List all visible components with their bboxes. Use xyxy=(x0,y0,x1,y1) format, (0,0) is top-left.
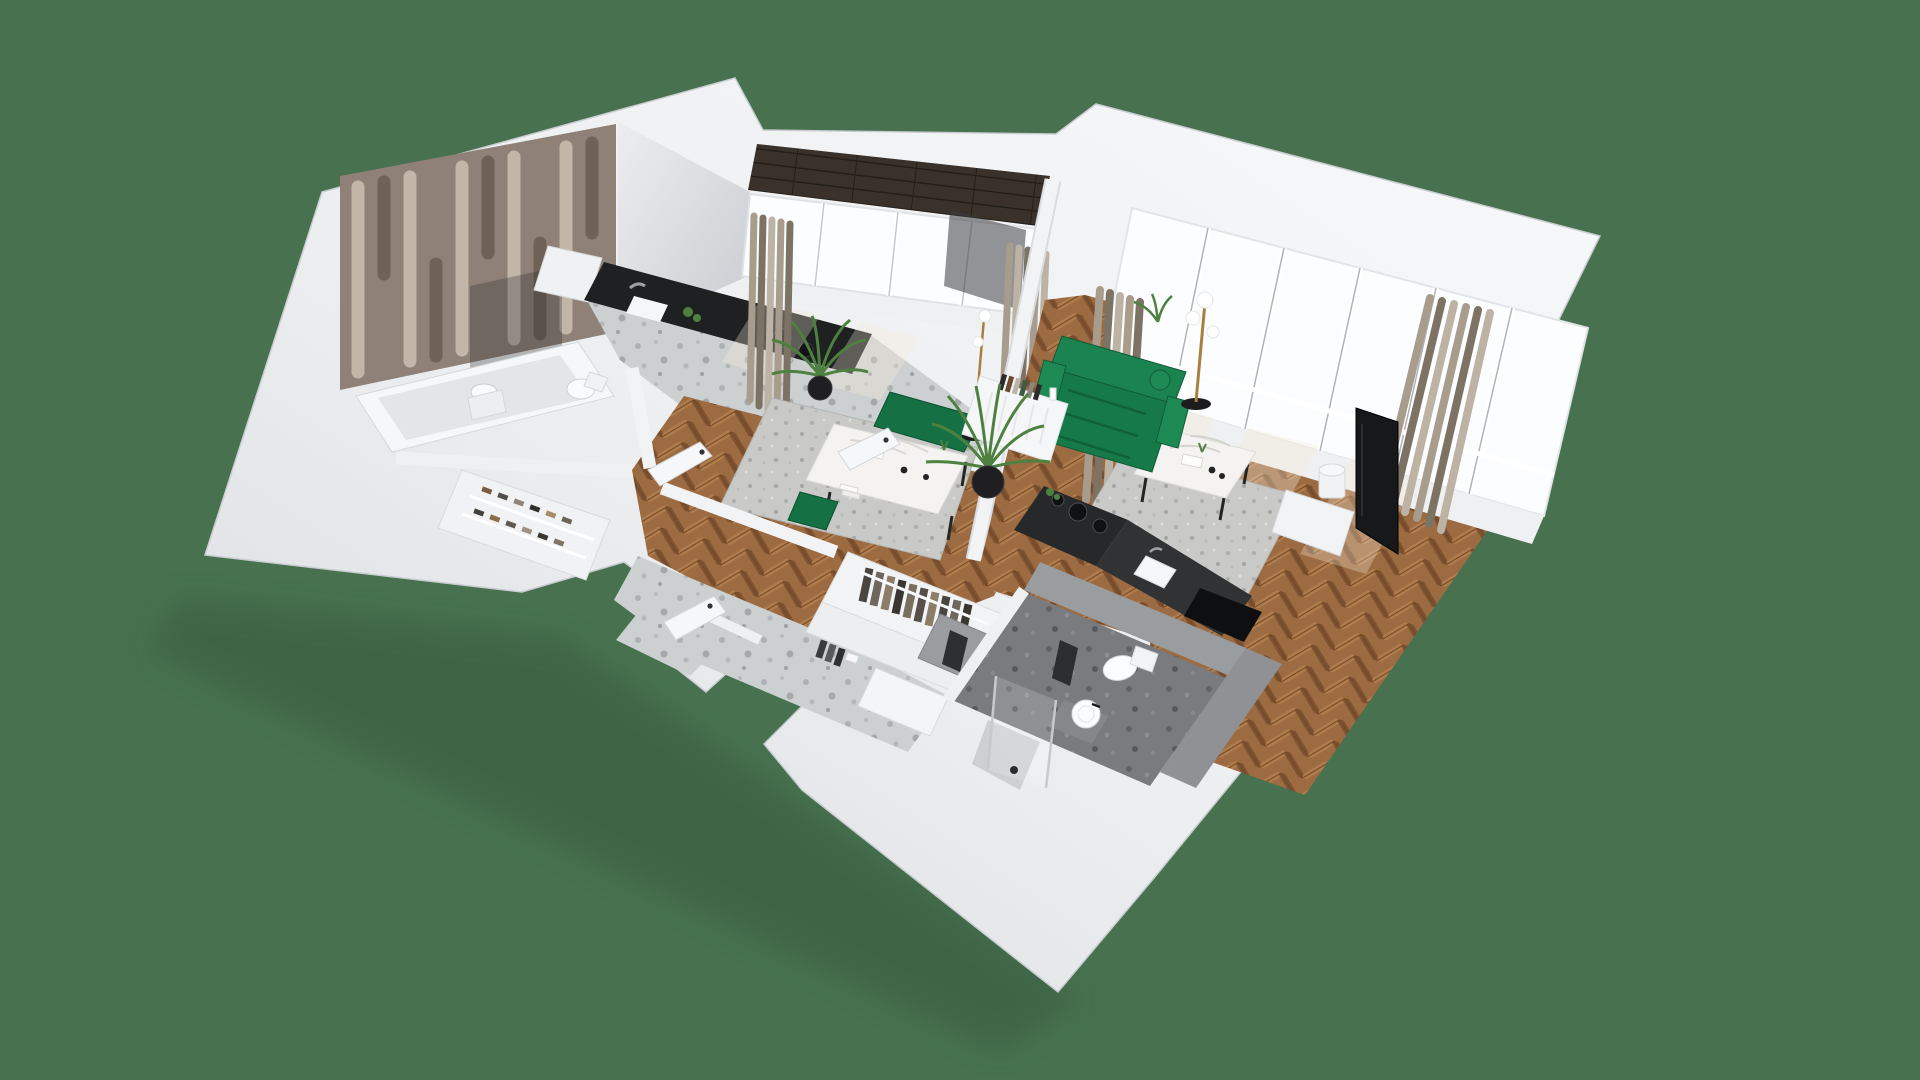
lamp-globe xyxy=(1197,292,1213,308)
shower-drain xyxy=(1010,766,1018,774)
produce-greens xyxy=(1054,494,1060,500)
coffee-cup xyxy=(901,467,908,474)
coffee-cup xyxy=(1219,473,1225,479)
coffee-cup xyxy=(1209,467,1216,474)
produce-greens xyxy=(683,307,693,317)
door-handle xyxy=(699,449,704,454)
hob-ring xyxy=(1093,519,1107,533)
apartment-floorplan xyxy=(0,0,1920,1080)
sofa-pillow xyxy=(1150,370,1170,390)
produce-greens xyxy=(1046,488,1054,496)
plant-pot xyxy=(972,466,1004,498)
lamp-globe xyxy=(979,310,991,322)
lamp-globe xyxy=(1207,326,1219,338)
waste-bin xyxy=(1319,464,1345,498)
hob-ring xyxy=(1069,503,1087,521)
bin-rim xyxy=(1319,464,1345,476)
door-handle xyxy=(883,437,888,442)
curtain-fold xyxy=(777,222,781,414)
vase xyxy=(1050,388,1056,400)
coffee-cup xyxy=(923,474,929,480)
curtain-fold xyxy=(786,224,790,418)
produce-greens xyxy=(693,314,701,322)
curtain-fold xyxy=(750,216,754,400)
render-viewport xyxy=(0,0,1920,1080)
plant-pot xyxy=(808,376,832,400)
lamp-globe xyxy=(1186,311,1200,325)
door-handle xyxy=(707,603,712,608)
curtain-fold xyxy=(768,220,772,410)
lamp-globe xyxy=(973,337,983,347)
curtain-fold xyxy=(759,218,763,406)
